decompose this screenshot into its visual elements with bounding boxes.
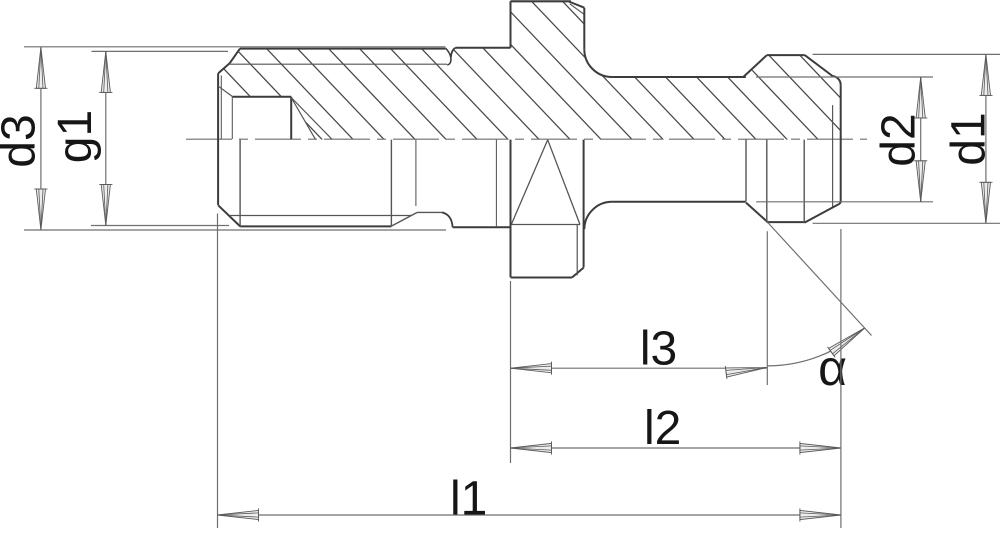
svg-text:α: α bbox=[818, 340, 847, 396]
svg-text:l2: l2 bbox=[644, 402, 681, 455]
svg-text:d1: d1 bbox=[943, 112, 996, 165]
svg-text:g1: g1 bbox=[49, 110, 102, 163]
svg-text:d3: d3 bbox=[0, 114, 46, 167]
svg-text:l3: l3 bbox=[640, 323, 677, 376]
svg-text:d2: d2 bbox=[873, 113, 926, 166]
svg-text:l1: l1 bbox=[450, 473, 487, 526]
